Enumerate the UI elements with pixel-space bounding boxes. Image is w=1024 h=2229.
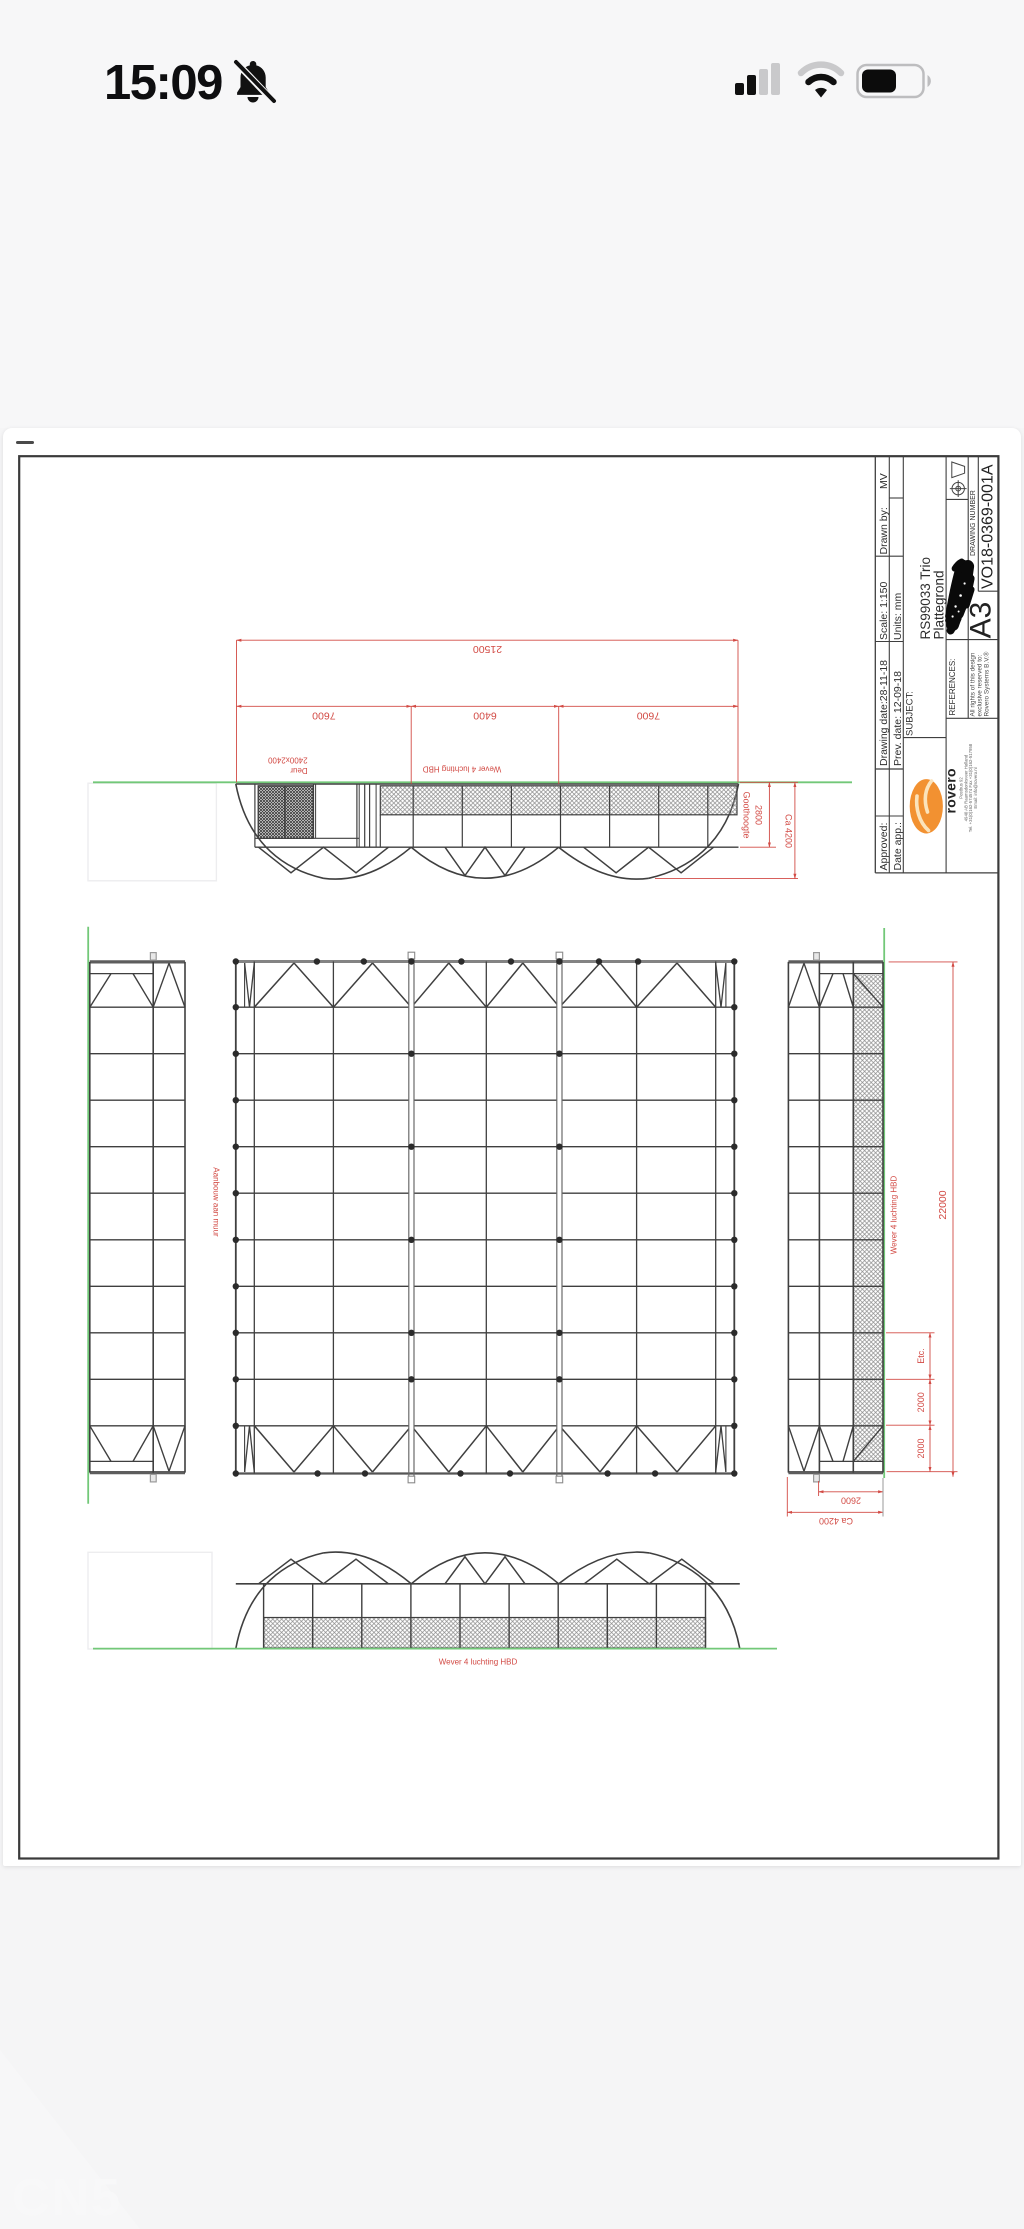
svg-text:A3: A3 [965, 602, 998, 639]
svg-text:7600: 7600 [312, 709, 336, 721]
svg-text:RS99033 Trio: RS99033 Trio [918, 557, 933, 640]
svg-text:Email: info@rovero.nl: Email: info@rovero.nl [973, 767, 978, 808]
svg-text:Goothoogte: Goothoogte [742, 791, 752, 838]
svg-text:Approved:: Approved: [878, 823, 890, 871]
svg-text:Plattegrond: Plattegrond [932, 570, 947, 639]
svg-text:DRAWING NUMBER: DRAWING NUMBER [970, 490, 977, 556]
svg-text:All rights of this design: All rights of this design [970, 652, 977, 716]
svg-text:Drawing date:28-11-18: Drawing date:28-11-18 [878, 660, 890, 766]
svg-text:Deur: Deur [290, 766, 308, 775]
svg-text:Rovero Systems B.V.®: Rovero Systems B.V.® [983, 651, 991, 716]
svg-text:MV: MV [878, 473, 890, 489]
svg-text:Wever 4 luchting HBD: Wever 4 luchting HBD [890, 1176, 899, 1255]
svg-text:Wever 4 luchting HBD: Wever 4 luchting HBD [423, 765, 502, 774]
svg-text:Ca 4200: Ca 4200 [819, 1516, 853, 1526]
svg-text:2800: 2800 [754, 805, 764, 825]
svg-text:2600: 2600 [841, 1495, 861, 1505]
svg-text:Units: mm: Units: mm [892, 592, 904, 640]
svg-text:Drawn by:: Drawn by: [878, 507, 890, 554]
svg-text:Wever 4 luchting HBD: Wever 4 luchting HBD [439, 1658, 518, 1667]
svg-text:2400x2400: 2400x2400 [267, 755, 307, 764]
svg-text:6400: 6400 [473, 709, 497, 721]
svg-text:Aanbouw aan muur: Aanbouw aan muur [212, 1167, 221, 1237]
svg-text:SUBJECT:: SUBJECT: [905, 691, 916, 736]
svg-text:2000: 2000 [916, 1438, 926, 1458]
svg-text:Etc.: Etc. [916, 1348, 926, 1364]
svg-text:Scale: 1:150: Scale: 1:150 [878, 581, 890, 640]
svg-text:7600: 7600 [637, 709, 661, 721]
svg-text:rovero: rovero [942, 768, 958, 813]
svg-text:2000: 2000 [916, 1392, 926, 1412]
svg-text:REFERENCES:: REFERENCES: [948, 659, 957, 716]
svg-text:VO18-0369-001A: VO18-0369-001A [980, 464, 997, 589]
svg-text:Date app.:: Date app.: [892, 822, 904, 870]
svg-text:Prev. date: 12-09-18: Prev. date: 12-09-18 [892, 671, 904, 766]
svg-text:22000: 22000 [937, 1190, 949, 1219]
svg-text:21500: 21500 [473, 643, 502, 655]
svg-text:Ca 4200: Ca 4200 [784, 814, 794, 848]
svg-text:exclusive reserved to:: exclusive reserved to: [977, 654, 984, 716]
